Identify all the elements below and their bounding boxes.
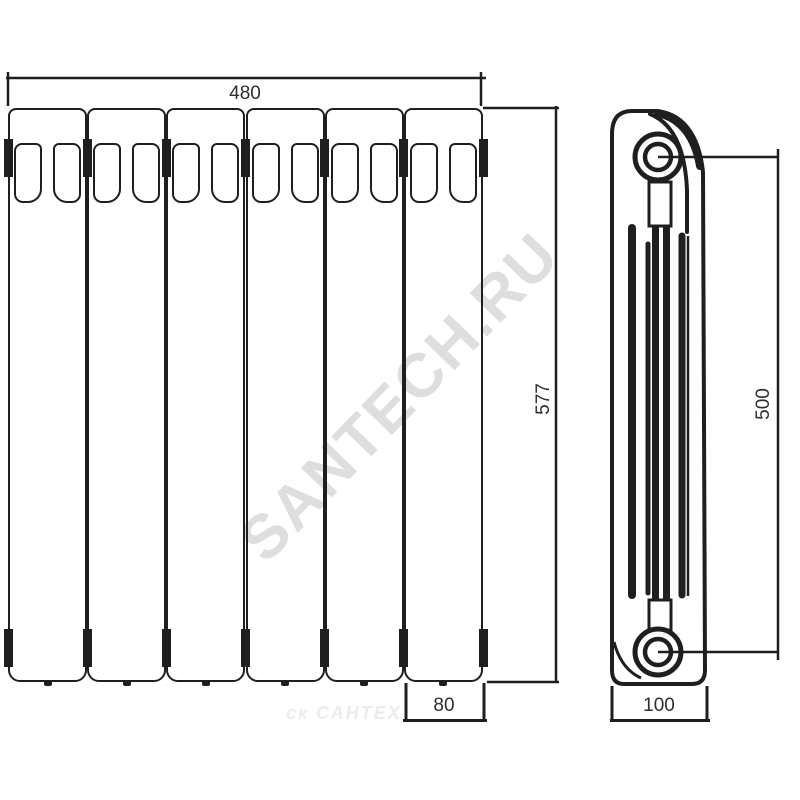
side-fins	[632, 226, 682, 600]
dimension-and-side-view-drawing	[0, 0, 800, 800]
dim-label-500: 500	[754, 382, 774, 426]
dim-label-100: 100	[632, 696, 686, 716]
top-neck	[649, 182, 671, 226]
dim-label-577: 577	[534, 377, 554, 421]
bottom-neck	[649, 600, 671, 630]
side-view	[612, 111, 705, 684]
dim-label-480: 480	[225, 84, 265, 104]
dim-label-80: 80	[424, 696, 464, 716]
radiator-dimension-drawing: SANTECH.RU ск САНТЕХ	[0, 0, 800, 800]
